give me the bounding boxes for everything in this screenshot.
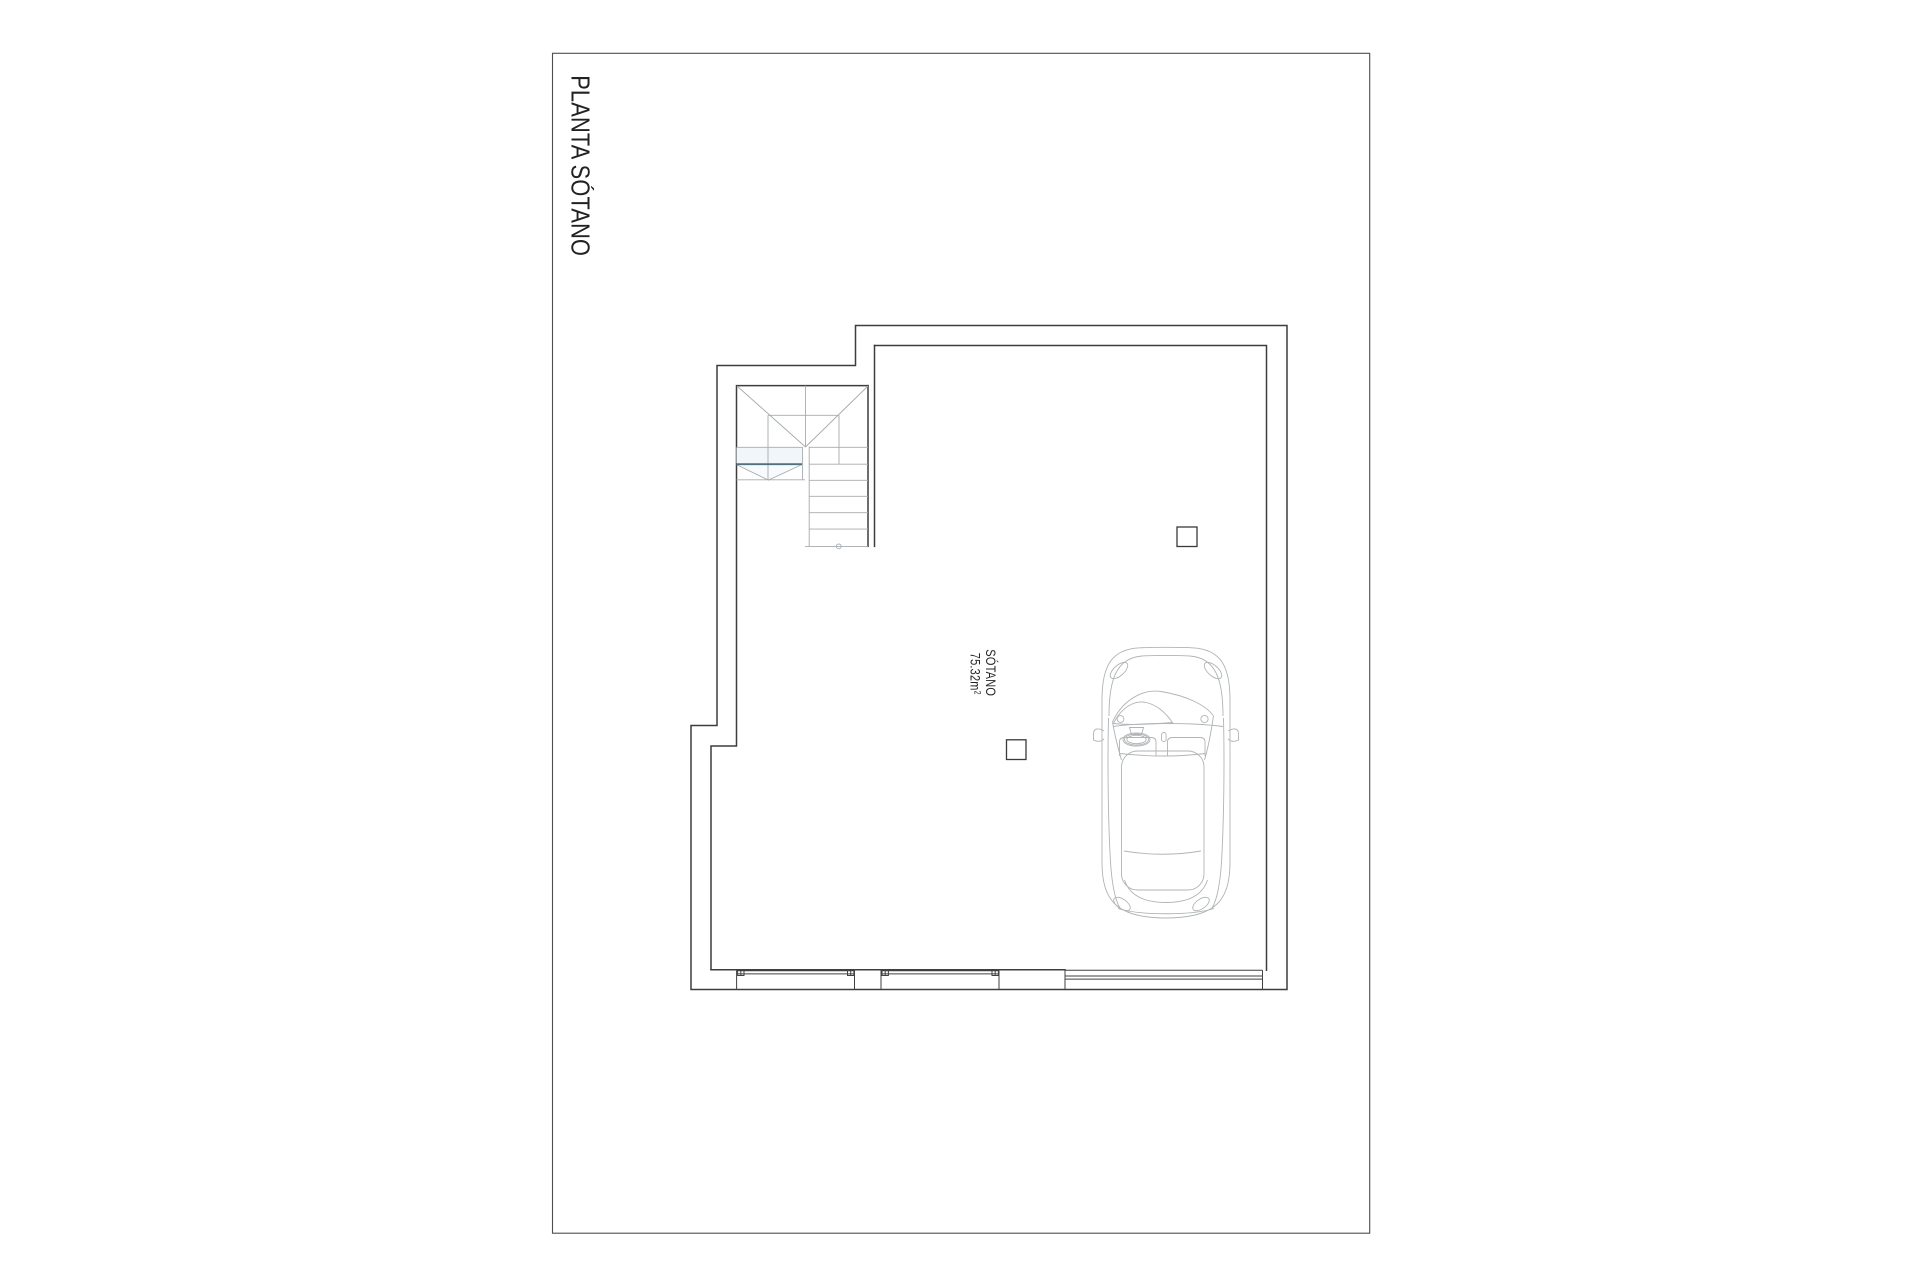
svg-text:75.32m2: 75.32m2 — [967, 653, 982, 695]
svg-text:SÓTANO: SÓTANO — [982, 649, 999, 696]
svg-text:PLANTA SÓTANO: PLANTA SÓTANO — [565, 75, 594, 256]
